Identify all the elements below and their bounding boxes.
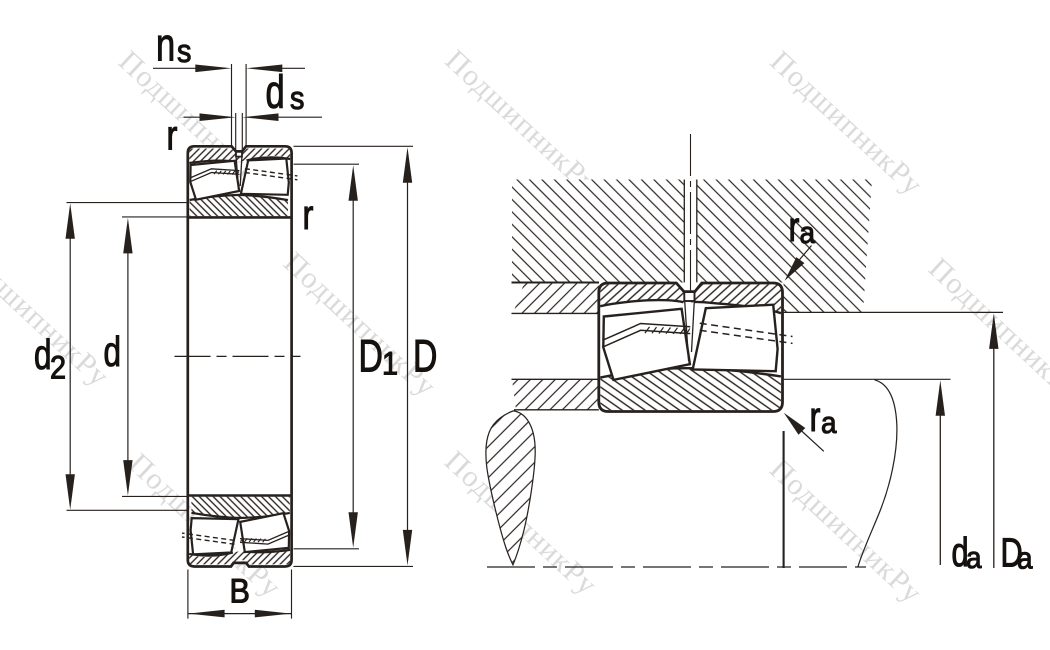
svg-text:ПодшипникРу: ПодшипникРу xyxy=(764,44,930,202)
svg-text:D: D xyxy=(413,332,437,382)
svg-text:2: 2 xyxy=(50,350,66,386)
svg-text:r: r xyxy=(789,203,800,250)
svg-text:d: d xyxy=(34,331,52,379)
svg-text:1: 1 xyxy=(382,346,398,382)
svg-text:ПодшипникРу: ПодшипникРу xyxy=(439,43,605,201)
svg-text:a: a xyxy=(1017,541,1033,576)
svg-text:r: r xyxy=(167,112,178,159)
svg-text:s: s xyxy=(290,81,304,117)
svg-text:n: n xyxy=(156,19,175,71)
svg-text:r: r xyxy=(810,393,821,440)
svg-text:a: a xyxy=(966,541,982,576)
svg-text:s: s xyxy=(177,34,191,70)
svg-text:B: B xyxy=(230,572,250,610)
svg-text:D: D xyxy=(359,332,383,382)
svg-text:a: a xyxy=(800,216,816,251)
svg-text:d: d xyxy=(104,328,122,376)
svg-text:r: r xyxy=(303,191,314,238)
svg-text:ПодшипникРу: ПодшипникРу xyxy=(922,251,1050,409)
svg-text:ПодшипникРу: ПодшипникРу xyxy=(763,452,929,610)
svg-text:a: a xyxy=(821,406,837,441)
svg-text:d: d xyxy=(266,66,285,118)
